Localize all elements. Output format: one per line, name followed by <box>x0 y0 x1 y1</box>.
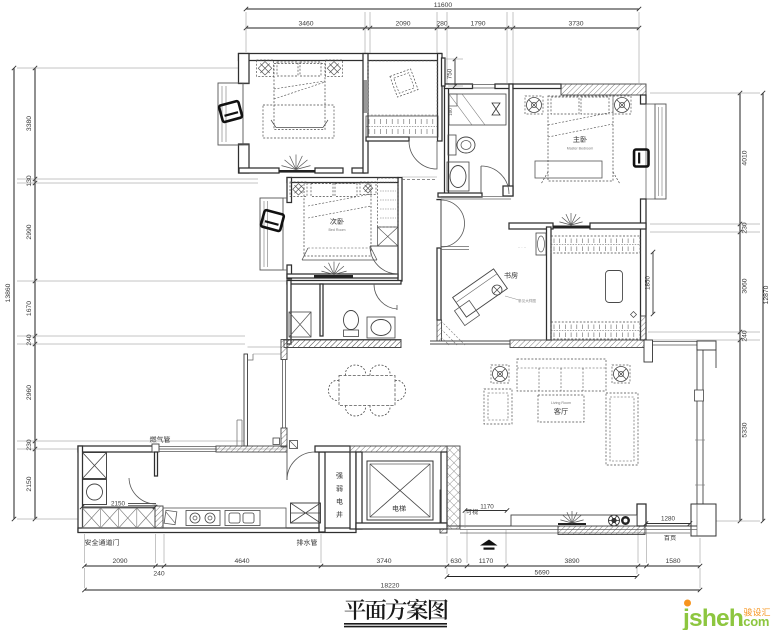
svg-text:参见大样图: 参见大样图 <box>518 298 536 303</box>
svg-text:·· · ··: ·· · ·· <box>518 246 526 250</box>
svg-text:1580: 1580 <box>665 558 680 565</box>
svg-text:13860: 13860 <box>5 283 12 302</box>
svg-text:.com: .com <box>740 614 769 629</box>
svg-text:4640: 4640 <box>234 558 249 565</box>
svg-text:3740: 3740 <box>376 558 391 565</box>
svg-text:3890: 3890 <box>564 558 579 565</box>
svg-text:5330: 5330 <box>742 422 749 437</box>
svg-text:1850: 1850 <box>645 276 652 291</box>
svg-text:240: 240 <box>153 571 165 578</box>
svg-text:11600: 11600 <box>434 2 453 9</box>
svg-text:100: 100 <box>448 108 453 116</box>
svg-text:12870: 12870 <box>763 285 770 304</box>
svg-text:130: 130 <box>26 175 33 187</box>
svg-text:3060: 3060 <box>742 278 749 293</box>
svg-text:2090: 2090 <box>112 558 127 565</box>
svg-text:2150: 2150 <box>26 476 33 491</box>
svg-text:1170: 1170 <box>479 558 494 565</box>
svg-text:3730: 3730 <box>568 21 583 28</box>
svg-text:Master Bedroom: Master Bedroom <box>567 147 594 151</box>
svg-text:2090: 2090 <box>395 21 410 28</box>
svg-text:3460: 3460 <box>298 21 313 28</box>
svg-text:3380: 3380 <box>26 116 33 131</box>
svg-text:Bed Room: Bed Room <box>329 228 346 232</box>
svg-text:jsheh: jsheh <box>682 605 743 630</box>
svg-text:2960: 2960 <box>26 385 33 400</box>
svg-text:1170: 1170 <box>480 504 494 511</box>
svg-text:18220: 18220 <box>381 583 400 590</box>
svg-text:280: 280 <box>436 21 448 28</box>
svg-text:2150: 2150 <box>111 501 126 508</box>
svg-text:750: 750 <box>447 68 454 79</box>
svg-text:4010: 4010 <box>742 150 749 165</box>
svg-text:5690: 5690 <box>534 570 549 577</box>
svg-text:630: 630 <box>450 558 462 565</box>
svg-text:1790: 1790 <box>470 21 485 28</box>
svg-text:2990: 2990 <box>26 224 33 239</box>
svg-text:Living Room: Living Room <box>551 401 571 405</box>
svg-text:1670: 1670 <box>26 301 33 316</box>
svg-text:1280: 1280 <box>661 516 676 523</box>
